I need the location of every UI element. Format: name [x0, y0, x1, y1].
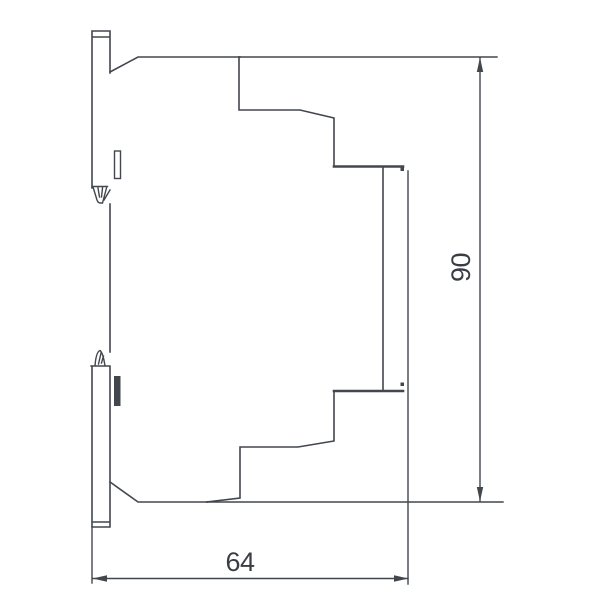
back-plate-bottom	[92, 367, 110, 527]
outline-top-edge	[110, 57, 240, 72]
lip-edge-dot-bottom	[401, 383, 405, 387]
din-clip-top	[92, 187, 110, 204]
outline-front-steps-bottom	[207, 391, 334, 502]
mounting-slot-top	[115, 151, 121, 179]
device-outline	[92, 31, 404, 527]
dimension-height-label: 90	[446, 253, 476, 282]
outline-front-steps-top	[239, 57, 334, 167]
dimension-width-label: 64	[225, 547, 255, 577]
height-arrow-up	[477, 58, 483, 73]
drawing-canvas: 90 64	[0, 0, 600, 600]
width-arrow-right	[394, 575, 409, 581]
height-arrow-down	[477, 487, 483, 502]
width-arrow-left	[93, 575, 108, 581]
back-details	[91, 151, 121, 406]
lip-edge-dot-top	[401, 168, 405, 172]
back-plate-top	[92, 31, 110, 188]
dimension-height: 90	[207, 57, 503, 502]
device-side-view-svg: 90 64	[0, 0, 600, 600]
din-clip-bottom	[91, 351, 110, 367]
mounting-slot-bottom	[114, 376, 121, 406]
outline-bottom-edge	[110, 482, 207, 502]
dimension-width: 64	[92, 171, 409, 584]
